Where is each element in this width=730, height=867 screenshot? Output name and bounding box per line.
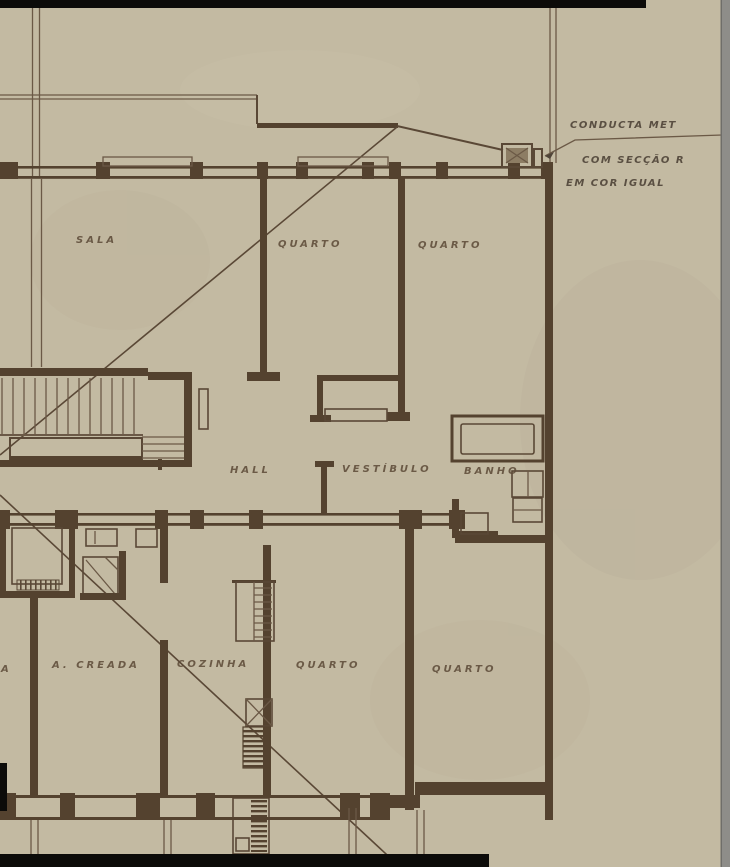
room-label-creada: A. CREADA [51, 660, 140, 671]
scan-edge-bottom [0, 854, 489, 867]
room-label-hall: HALL [230, 465, 271, 476]
room-label-banho: BANHO [464, 466, 520, 477]
bottom-walls [0, 782, 553, 855]
floor-plan-scan: CONDUCTA MET COM SECÇÃO R EM COR IGUAL [0, 0, 730, 867]
room-label-quarto-bottom-right: QUARTO [432, 664, 496, 675]
staircase [0, 368, 208, 470]
room-label-quarto-bottom-left: QUARTO [296, 660, 360, 671]
scan-edge-left-notch [0, 763, 7, 811]
floor-plan-drawing: CONDUCTA MET COM SECÇÃO R EM COR IGUAL [0, 0, 730, 867]
scan-edge-gray-line [721, 0, 723, 867]
lower-top-wall [0, 510, 553, 543]
annotation-line-1: CONDUCTA MET [570, 120, 677, 131]
room-label-quarto-top-right: QUARTO [418, 240, 482, 251]
toilet [461, 513, 488, 534]
vestibule-stub-wall [315, 461, 334, 515]
room-label-edge-partial: A [0, 664, 12, 675]
room-label-sala: SALA [76, 235, 117, 246]
scan-edge-gray-strip [722, 0, 730, 867]
annotation-line-2: COM SECÇÃO R [582, 153, 685, 166]
room-label-cozinha: COZINHA [177, 659, 249, 670]
upper-front-wall [0, 157, 553, 179]
right-outer-wall [545, 163, 553, 820]
lower-bathroom [452, 499, 498, 538]
room-label-vestibulo: VESTÍBULO [342, 462, 432, 475]
annotation-note: CONDUCTA MET COM SECÇÃO R EM COR IGUAL [566, 120, 685, 189]
room-label-quarto-top-left: QUARTO [278, 239, 342, 250]
annotation-line-3: EM COR IGUAL [566, 178, 665, 189]
service-bath [80, 529, 157, 600]
upper-partitions [247, 178, 410, 422]
scan-edge-top [0, 0, 646, 8]
